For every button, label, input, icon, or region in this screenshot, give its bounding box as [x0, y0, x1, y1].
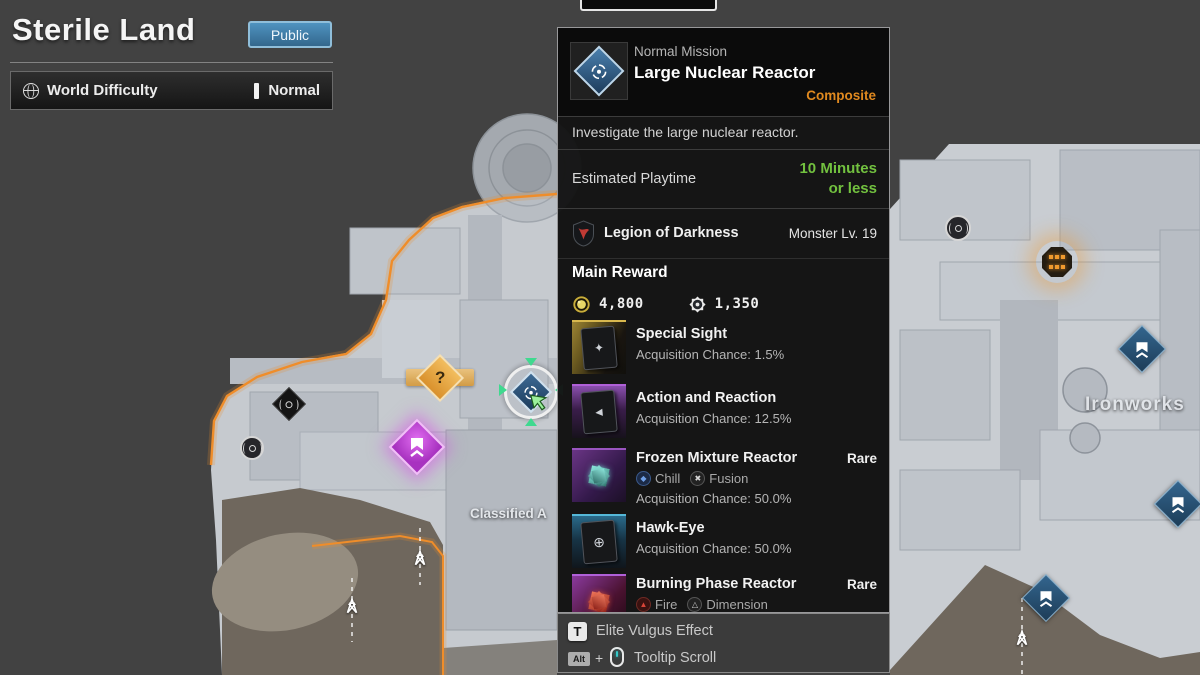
- tooltip-key-legend: T Elite Vulgus Effect Alt + Tooltip Scro…: [557, 613, 890, 673]
- mission-description: Investigate the large nuclear reactor.: [572, 117, 798, 148]
- mission-type: Normal Mission: [634, 44, 727, 59]
- faction-name: Legion of Darkness: [604, 209, 739, 258]
- camera-objective-marker-2[interactable]: [945, 215, 971, 241]
- bracket-right-icon: [257, 443, 262, 454]
- banner-icon: [1040, 590, 1053, 607]
- mouse-cursor: [531, 392, 551, 419]
- rarity-badge: Rare: [847, 577, 877, 592]
- reward-tags: ◆ Chill ✖ Fusion: [636, 471, 748, 486]
- reactor-icon: [572, 574, 626, 613]
- playtime-label: Estimated Playtime: [572, 150, 696, 208]
- plus-sign: +: [595, 650, 603, 666]
- main-reward-title: Main Reward: [572, 264, 668, 282]
- reward-chance: Acquisition Chance: 50.0%: [636, 491, 791, 506]
- banner-icon: [409, 437, 425, 457]
- question-mark-icon: ?: [435, 368, 445, 388]
- banner-icon: [1136, 341, 1149, 358]
- mission-tooltip: Normal Mission Large Nuclear Reactor Com…: [557, 27, 890, 613]
- tag-label: Dimension: [706, 597, 767, 612]
- pylon-icon: [343, 597, 361, 620]
- reward-name: Action and Reaction: [636, 390, 776, 406]
- game-map-screen: Classified A Ironworks ?: [0, 0, 1200, 675]
- gold-coin-icon: [572, 295, 591, 314]
- elite-vulgus-effect-label: Elite Vulgus Effect: [596, 623, 713, 639]
- kuiper-amount: 1,350: [715, 296, 760, 312]
- chill-icon: ◆: [636, 471, 651, 486]
- playtime-value: 10 Minutes or less: [799, 159, 877, 199]
- faction-shield-icon: [572, 220, 595, 252]
- gold-amount: 4,800: [599, 296, 644, 312]
- brackets-icon: [280, 399, 299, 410]
- pylon-icon: [1013, 629, 1031, 652]
- module-icon: ✦: [572, 320, 626, 374]
- selection-arrow-top: [525, 358, 537, 366]
- selection-arrow-bottom: [525, 418, 537, 426]
- bracket-right-icon: [963, 223, 968, 234]
- bracket-left-icon: [949, 223, 954, 234]
- module-icon: ◄: [572, 384, 626, 438]
- monster-level: Monster Lv. 19: [789, 209, 877, 258]
- tag-label: Fusion: [709, 471, 748, 486]
- currency-row: 4,800 1,350: [572, 292, 759, 316]
- reward-name: Special Sight: [636, 326, 727, 342]
- key-alt: Alt: [568, 652, 590, 666]
- lens-dot-icon: [955, 225, 962, 232]
- vulgus-outpost-marker[interactable]: [1042, 247, 1072, 277]
- reward-name: Frozen Mixture Reactor: [636, 450, 797, 466]
- reward-name: Hawk-Eye: [636, 520, 705, 536]
- reward-name: Burning Phase Reactor: [636, 576, 796, 592]
- map-label-ironworks: Ironworks: [1085, 394, 1185, 416]
- reward-item-burning-phase-reactor: Burning Phase Reactor Rare ▲ Fire △ Dime…: [558, 574, 889, 613]
- mission-tag-composite: Composite: [806, 88, 876, 103]
- fire-icon: ▲: [636, 597, 651, 612]
- module-icon: ⊕: [572, 514, 626, 568]
- reward-chance: Acquisition Chance: 12.5%: [636, 411, 791, 426]
- reward-tags: ▲ Fire △ Dimension: [636, 597, 768, 612]
- reward-item-special-sight: ✦ Special Sight Acquisition Chance: 1.5%: [558, 320, 889, 378]
- kuiper-shard-icon: [688, 295, 707, 314]
- tooltip-scroll-label: Tooltip Scroll: [634, 650, 716, 666]
- mouse-scroll-icon: [610, 647, 624, 667]
- reward-item-frozen-mixture-reactor: Frozen Mixture Reactor Rare ◆ Chill ✖ Fu…: [558, 448, 889, 512]
- dimension-icon: △: [687, 597, 702, 612]
- map-label-classified-area: Classified A: [470, 506, 547, 521]
- fusion-icon: ✖: [690, 471, 705, 486]
- lens-dot-icon: [249, 445, 256, 452]
- selection-arrow-left: [499, 384, 507, 396]
- rarity-badge: Rare: [847, 451, 877, 466]
- reward-chance: Acquisition Chance: 50.0%: [636, 541, 791, 556]
- mission-name: Large Nuclear Reactor: [634, 63, 815, 83]
- banner-icon: [1172, 496, 1185, 513]
- pylon-icon: [411, 549, 429, 572]
- reactor-icon: [572, 448, 626, 502]
- reward-chance: Acquisition Chance: 1.5%: [636, 347, 784, 362]
- mission-type-icon: [570, 42, 628, 100]
- tag-label: Chill: [655, 471, 680, 486]
- reward-item-hawk-eye: ⊕ Hawk-Eye Acquisition Chance: 50.0%: [558, 514, 889, 570]
- camera-objective-marker[interactable]: [240, 436, 264, 460]
- reward-item-action-and-reaction: ◄ Action and Reaction Acquisition Chance…: [558, 384, 889, 442]
- bracket-left-icon: [243, 443, 248, 454]
- tag-label: Fire: [655, 597, 677, 612]
- key-t: T: [568, 622, 587, 641]
